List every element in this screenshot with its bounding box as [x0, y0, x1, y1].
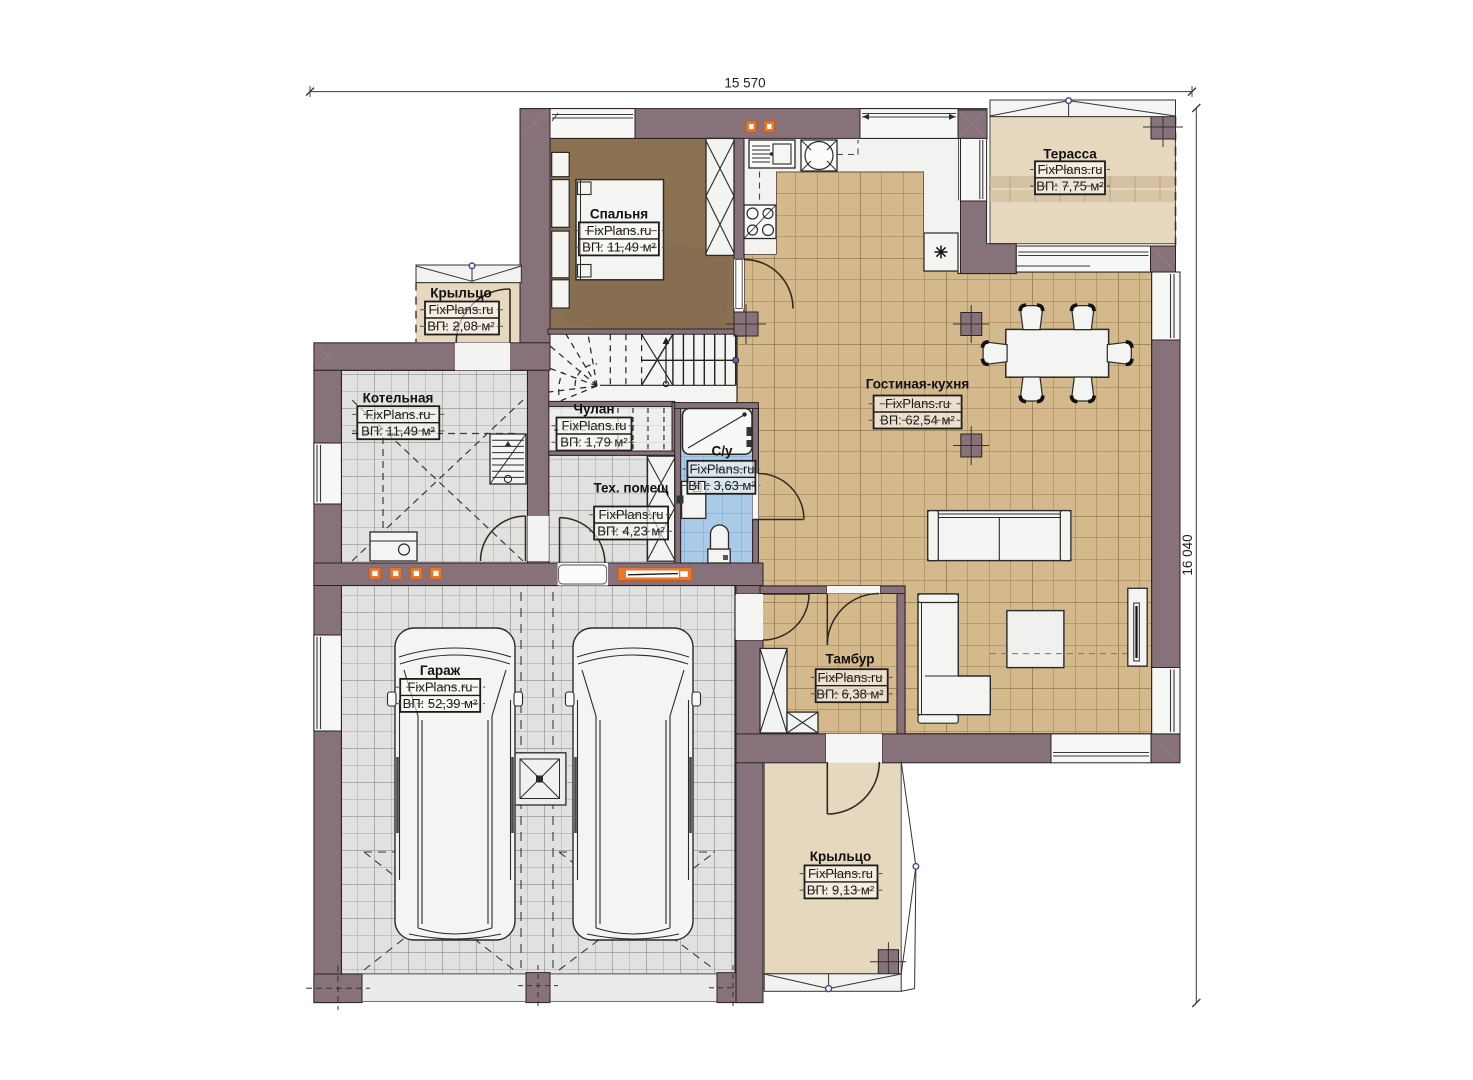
svg-text:FixPlans.ru: FixPlans.ru — [561, 418, 626, 433]
svg-text:15 570: 15 570 — [724, 76, 765, 91]
svg-text:FixPlans.ru: FixPlans.ru — [598, 507, 663, 522]
svg-text:Крыльцо: Крыльцо — [430, 286, 491, 301]
svg-text:Гостиная-кухня: Гостиная-кухня — [866, 377, 969, 392]
svg-text:FixPlans.ru: FixPlans.ru — [428, 302, 493, 317]
svg-text:Крыльцо: Крыльцо — [810, 849, 871, 864]
svg-text:ВП: 9,13 м²: ВП: 9,13 м² — [807, 883, 875, 898]
svg-text:Тамбур: Тамбур — [826, 651, 875, 666]
svg-text:Гараж: Гараж — [420, 663, 461, 678]
svg-text:Котельная: Котельная — [363, 391, 434, 406]
svg-text:FixPlans.ru: FixPlans.ru — [808, 866, 873, 881]
svg-text:ВП: 2,08 м²: ВП: 2,08 м² — [427, 319, 495, 334]
svg-text:С/у: С/у — [711, 444, 733, 459]
svg-text:FixPlans.ru: FixPlans.ru — [1037, 162, 1102, 177]
svg-text:Чулан: Чулан — [573, 402, 614, 417]
svg-text:16 040: 16 040 — [1180, 534, 1195, 575]
svg-text:Спальня: Спальня — [590, 207, 648, 222]
svg-text:Тех. помещ: Тех. помещ — [593, 481, 669, 496]
svg-text:Терасса: Терасса — [1043, 147, 1097, 162]
